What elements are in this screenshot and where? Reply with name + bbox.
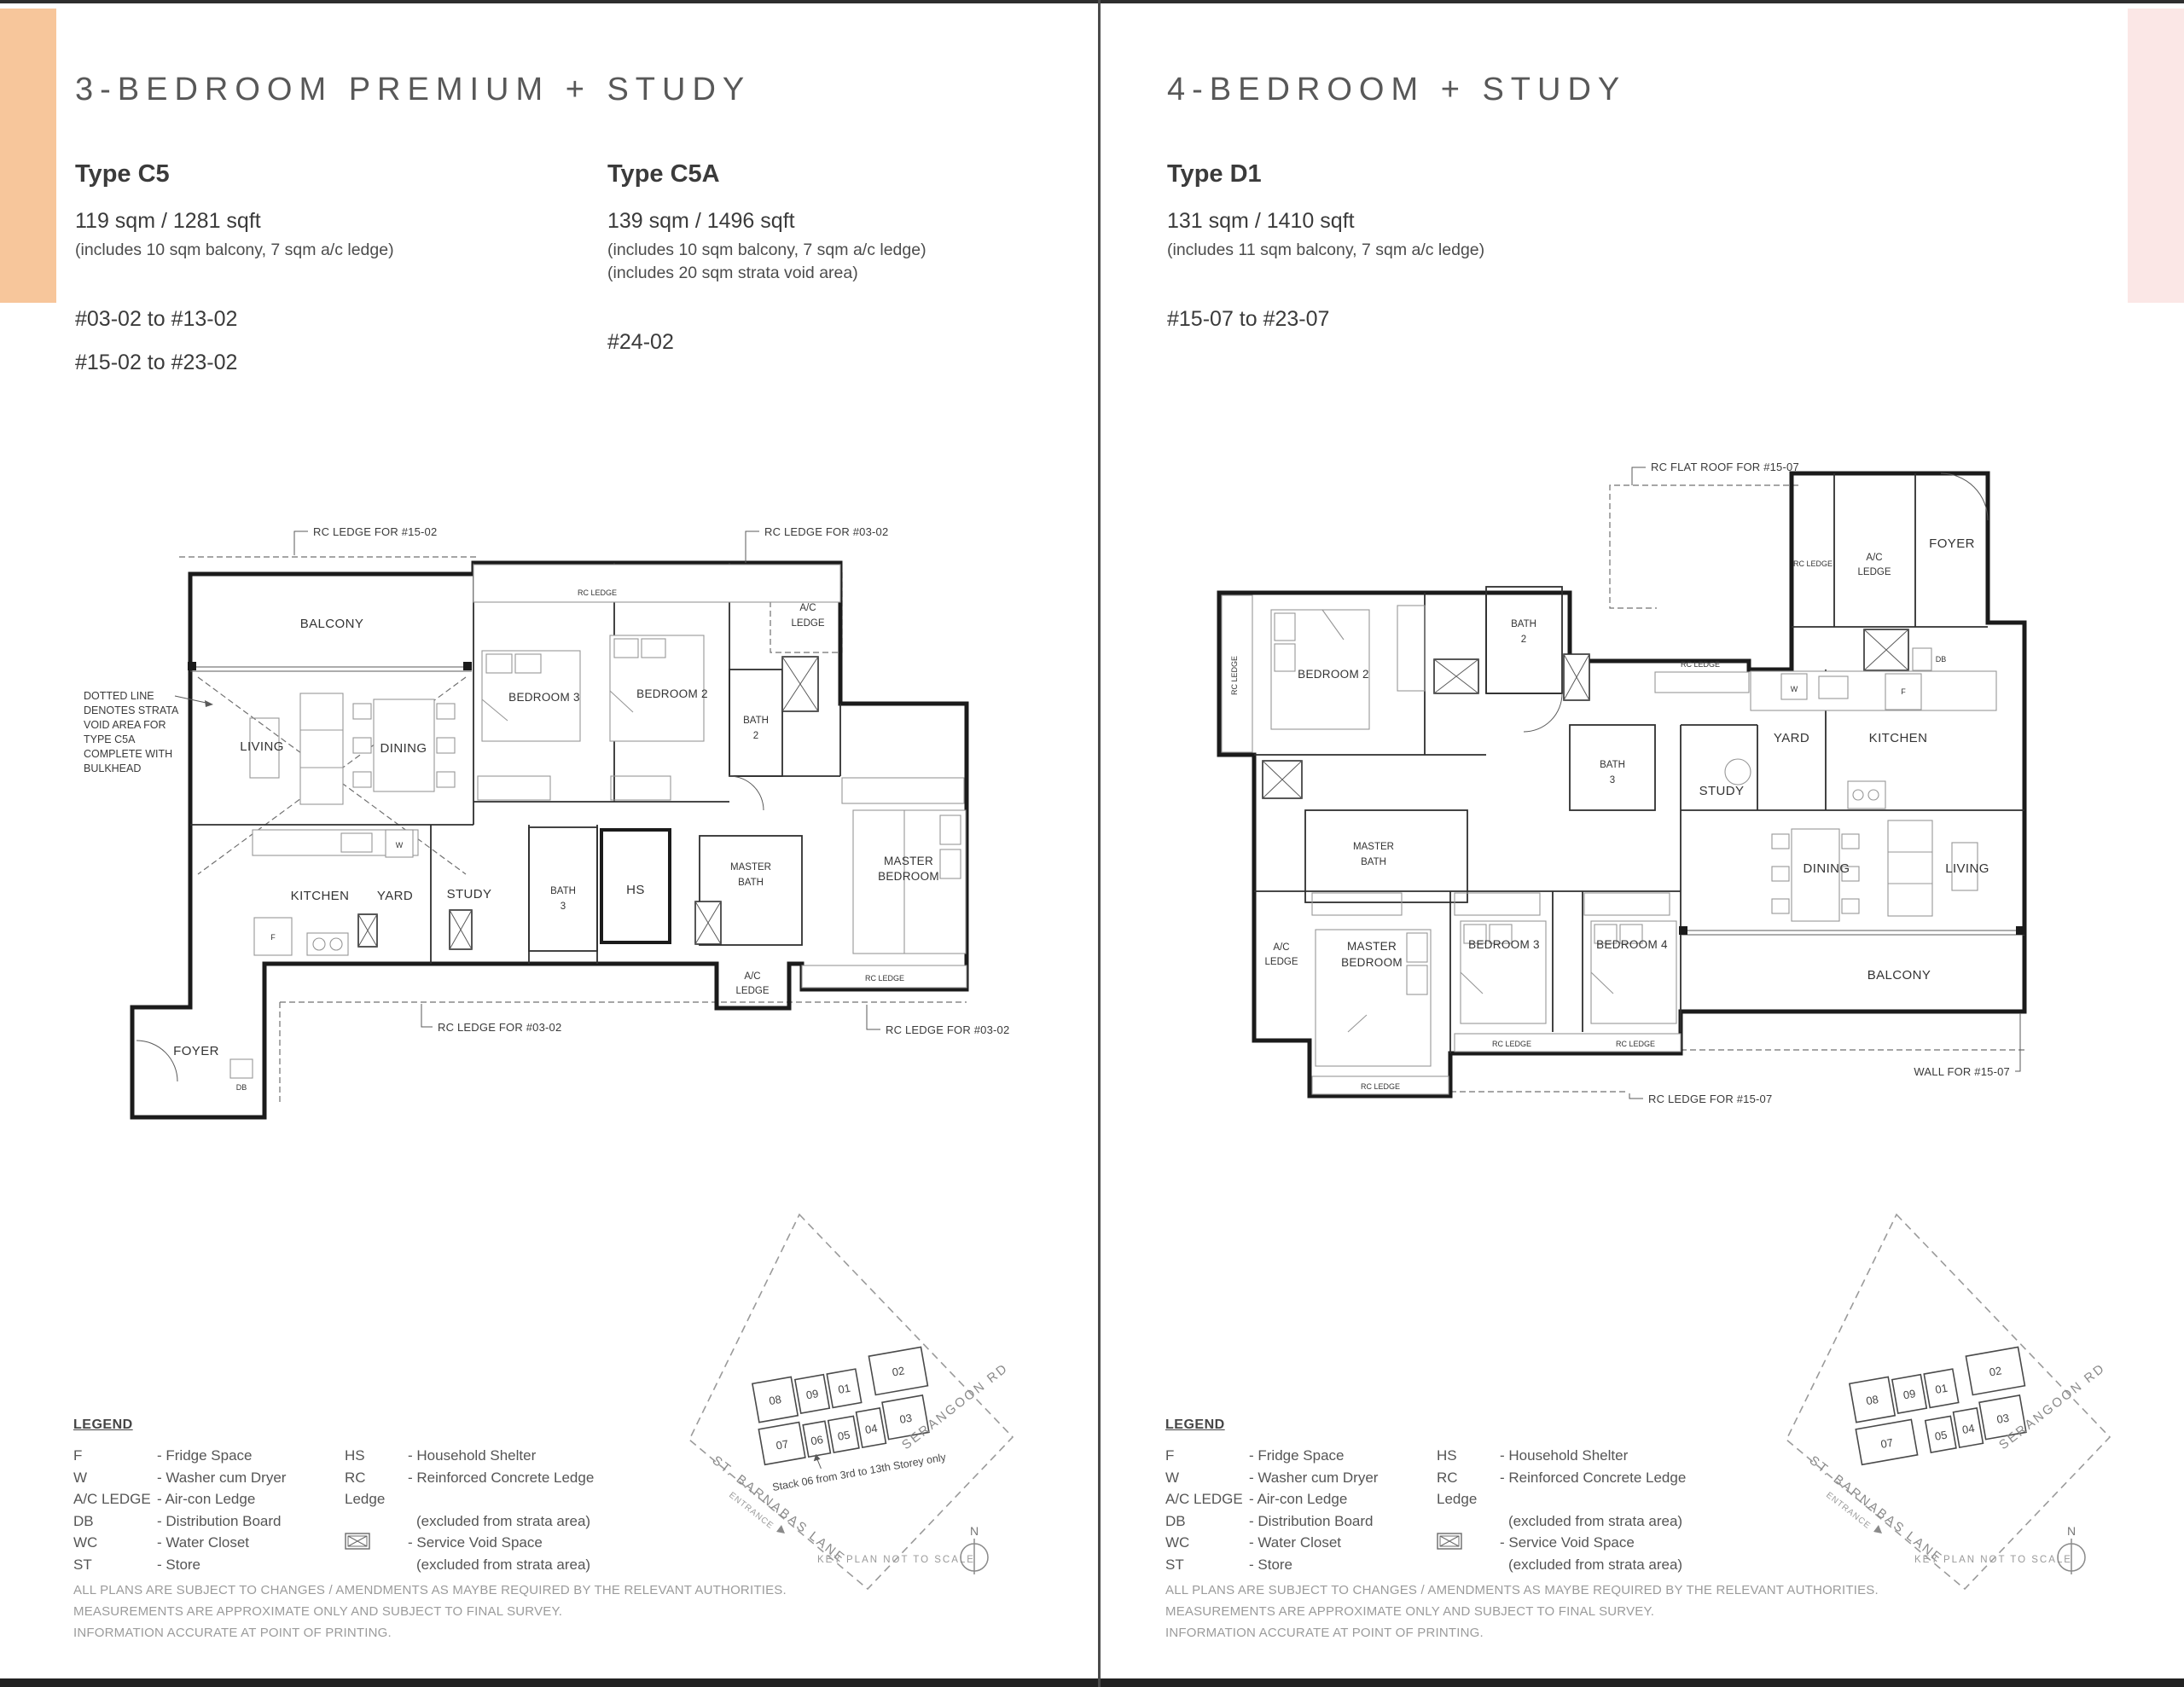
foyer-label: FOYER [1929,536,1975,551]
type-d1-name: Type D1 [1167,160,1679,188]
type-c5-units2: #15-02 to #23-02 [75,341,587,385]
type-c5-units1: #03-02 to #13-02 [75,298,587,341]
svg-text:BULKHEAD: BULKHEAD [84,762,141,774]
svg-text:01: 01 [837,1382,851,1396]
type-c5a-note2: (includes 20 sqm strata void area) [607,262,1119,285]
rc-ledge-strip-mid [1655,672,1749,693]
rc-ledge-strip-top [473,565,840,602]
master-bedroom-label: BEDROOM [878,870,939,883]
bath2-label: BATH [1511,619,1536,629]
type-d1-note1: (includes 11 sqm balcony, 7 sqm a/c ledg… [1167,239,1679,262]
kitchen-label: KITCHEN [1869,731,1928,745]
bedroom4-label: BEDROOM 4 [1596,938,1668,951]
wardrobe-hatch [842,778,964,803]
strata-void-note: DOTTED LINE DENOTES STRATA VOID AREA FOR… [84,690,179,774]
callout-rc-ledge-03-02-mid: RC LEDGE FOR #03-02 [438,1021,561,1034]
bedroom2-label: BEDROOM 2 [1298,668,1369,681]
type-c5-block: Type C5 119 sqm / 1281 sqft (includes 10… [75,160,587,385]
service-void-icon [1437,1533,1462,1550]
ac-ledge-top-label: A/C [1866,553,1882,563]
type-d1-units1: #15-07 to #23-07 [1167,298,1679,341]
stove [1848,781,1885,809]
legend-left: LEGEND F- Fridge Space W- Washer cum Dry… [73,1417,1063,1445]
entrance-arrow [1873,1525,1882,1533]
type-c5a-note1: (includes 10 sqm balcony, 7 sqm a/c ledg… [607,239,1119,262]
callout-rc-ledge-03-02-right: RC LEDGE FOR #03-02 [886,1023,1009,1036]
svg-text:DOTTED LINE: DOTTED LINE [84,690,154,702]
bath3-label: 3 [561,901,566,912]
service-void [1434,659,1478,693]
door-arc [729,776,764,810]
north-compass: N [961,1524,988,1574]
service-void [1263,761,1302,798]
wardrobe-hatch [1312,893,1402,915]
callout-rc-flat-roof: RC FLAT ROOF FOR #15-07 [1651,461,1799,473]
svg-text:02: 02 [1989,1364,2003,1378]
page-title-left: 3-BEDROOM PREMIUM + STUDY [75,72,751,108]
svg-text:COMPLETE WITH: COMPLETE WITH [84,748,172,760]
master-bedroom-label: MASTER [884,855,933,867]
hs-label: HS [626,883,645,897]
rc-ledge-dash-bottom [280,1002,967,1104]
keyplan-scale-note: KEY PLAN NOT TO SCALE [817,1555,975,1565]
db-box [1913,648,1931,670]
service-void [1864,629,1908,670]
rc-ledge-left-label: RC LEDGE [1230,656,1239,695]
washer-label: W [396,841,404,849]
wardrobe-hatch [478,776,550,800]
master-bath-label: BATH [1361,857,1386,867]
study-table [1725,759,1751,785]
svg-text:TYPE C5A: TYPE C5A [84,733,136,745]
bath2-label: 2 [753,731,758,741]
foyer-door-arc [1941,473,1988,520]
living-label: LIVING [240,739,284,754]
page-title-right: 4-BEDROOM + STUDY [1167,72,1626,108]
master-bedroom-label: MASTER [1347,940,1397,953]
svg-text:09: 09 [805,1387,820,1401]
key-plan-right: 08 09 01 02 07 05 04 03 ST. BARNABAS LAN… [1771,1192,2164,1636]
street-st-barnabas: ST. BARNABAS LANE [710,1453,849,1566]
type-c5a-units1: #24-02 [607,321,1119,364]
callout-rc-ledge-15-02: RC LEDGE FOR #15-02 [313,525,437,538]
ac-ledge-top-label: LEDGE [1858,567,1891,577]
type-d1-area: 131 sqm / 1410 sqft [1167,209,1679,234]
ac-ledge-left-label: LEDGE [1265,957,1298,967]
fridge-label: F [270,933,276,942]
rc-ledge-b3-label: RC LEDGE [1361,1082,1400,1091]
bottom-border [0,1678,2184,1687]
callout-rc-ledge-15-07: RC LEDGE FOR #15-07 [1648,1093,1772,1105]
svg-text:08: 08 [1865,1393,1879,1407]
service-void [358,914,377,947]
entrance-arrow [776,1525,785,1533]
floor-plan-d1: RC FLAT ROOF FOR #15-07 RC LEDGE FOR #15… [1211,461,2133,1117]
yard-label: YARD [377,889,413,903]
master-bath-label: MASTER [1353,842,1394,852]
street-st-barnabas: ST. BARNABAS LANE [1807,1453,1946,1566]
bath3-label: BATH [550,886,576,896]
yard-label: YARD [1774,731,1809,745]
disclaimer-left: ALL PLANS ARE SUBJECT TO CHANGES / AMEND… [73,1580,787,1644]
kitchen-label: KITCHEN [291,889,350,903]
balcony-post [463,662,472,670]
foyer-label: FOYER [173,1044,219,1058]
type-d1-block: Type D1 131 sqm / 1410 sqft (includes 11… [1167,160,1679,341]
legend-right: LEGEND F- Fridge Space W- Washer cum Dry… [1165,1417,2155,1445]
rc-flat-roof-dash [1610,485,1798,608]
rc-ledge-top-label: RC LEDGE [1793,559,1833,568]
door-arc [1524,693,1562,732]
ac-ledge-top-label: LEDGE [792,618,825,629]
balcony-label: BALCONY [300,617,364,631]
top-border [0,0,2184,3]
wardrobe-hatch [1397,606,1425,691]
floor-plan-c5: RC LEDGE FOR #15-02 RC LEDGE FOR #03-02 … [51,512,1066,1109]
type-c5-area: 119 sqm / 1281 sqft [75,209,587,234]
type-c5-name: Type C5 [75,160,587,188]
rc-ledge-b2-label: RC LEDGE [1616,1040,1655,1048]
service-void [695,901,721,944]
balcony-post [188,662,196,670]
study-label: STUDY [447,887,492,901]
bed-bedroom3 [1461,921,1546,1023]
bath2-label: 2 [1521,635,1526,645]
disclaimer-right: ALL PLANS ARE SUBJECT TO CHANGES / AMEND… [1165,1580,1879,1644]
master-bath-label: BATH [738,878,764,888]
balcony-glass [190,667,472,671]
bath3-label: BATH [1600,760,1625,770]
foyer-door-arc [136,1041,177,1081]
accent-bar-left [0,9,56,303]
keyplan-scale-note: KEY PLAN NOT TO SCALE [1914,1555,2072,1565]
callout-wall-15-07: WALL FOR #15-07 [1914,1065,2010,1078]
db-box [230,1059,253,1078]
legend-title: LEGEND [73,1417,1063,1433]
type-c5a-area: 139 sqm / 1496 sqft [607,209,1119,234]
master-bedroom-label: BEDROOM [1341,956,1403,969]
strata-arrowhead [205,700,213,707]
bedroom2-label: BEDROOM 2 [636,687,708,700]
key-plan-left: 08 09 01 02 07 06 05 04 03 Stack 06 from… [674,1192,1066,1636]
rc-ledge-small-bottom: RC LEDGE [865,974,904,983]
rc-ledge-mid-label: RC LEDGE [1681,660,1720,669]
stove [307,933,348,955]
type-c5a-name: Type C5A [607,160,1119,188]
balcony-glass [1681,930,2024,935]
svg-text:02: 02 [892,1364,906,1378]
sofa [1888,820,1932,916]
bath3-label: 3 [1610,775,1615,786]
svg-text:N: N [970,1524,979,1538]
balcony-post [1679,926,1687,935]
db-label: DB [1936,655,1947,664]
sofa [300,693,343,804]
living-label: LIVING [1945,861,1989,876]
washer-label: W [1791,685,1798,693]
svg-text:VOID AREA FOR: VOID AREA FOR [84,719,166,731]
service-void [450,910,472,949]
ac-ledge-bottom-label: LEDGE [736,986,770,996]
svg-text:DENOTES STRATA: DENOTES STRATA [84,704,179,716]
legend-title: LEGEND [1165,1417,2155,1433]
master-bath-label: MASTER [730,862,771,872]
bedroom3-label: BEDROOM 3 [1468,938,1540,951]
svg-text:N: N [2067,1524,2076,1538]
svg-text:08: 08 [768,1393,782,1407]
fridge-label: F [1901,687,1906,696]
svg-text:01: 01 [1934,1382,1949,1396]
service-void-icon [345,1533,370,1550]
ac-ledge-left-label: A/C [1273,942,1289,953]
master-bath-room [1305,810,1467,902]
rc-ledge-small-top: RC LEDGE [578,588,617,597]
dining-label: DINING [380,741,427,756]
type-c5a-block: Type C5A 139 sqm / 1496 sqft (includes 1… [607,160,1119,364]
balcony-post [2016,926,2024,935]
accent-bar-right [2128,9,2184,303]
bedroom3-label: BEDROOM 3 [508,691,580,704]
svg-text:09: 09 [1902,1387,1917,1401]
service-void [782,657,818,711]
type-c5-note1: (includes 10 sqm balcony, 7 sqm a/c ledg… [75,239,587,262]
study-label: STUDY [1699,784,1745,798]
bed-bedroom4 [1591,921,1676,1023]
dining-label: DINING [1804,861,1850,876]
db-label: DB [236,1083,247,1092]
balcony-label: BALCONY [1867,968,1931,983]
callout-rc-ledge-03-02-top: RC LEDGE FOR #03-02 [764,525,888,538]
bath2-label: BATH [743,716,769,726]
ac-ledge-top-label: A/C [799,603,816,613]
interior-walls [190,563,840,964]
ac-ledge-bottom-label: A/C [744,971,760,982]
rc-ledge-b1-label: RC LEDGE [1492,1040,1531,1048]
wardrobe-hatch [1584,893,1670,915]
service-void [1564,654,1589,700]
wardrobe-hatch [611,776,671,800]
north-compass: N [2058,1524,2085,1574]
